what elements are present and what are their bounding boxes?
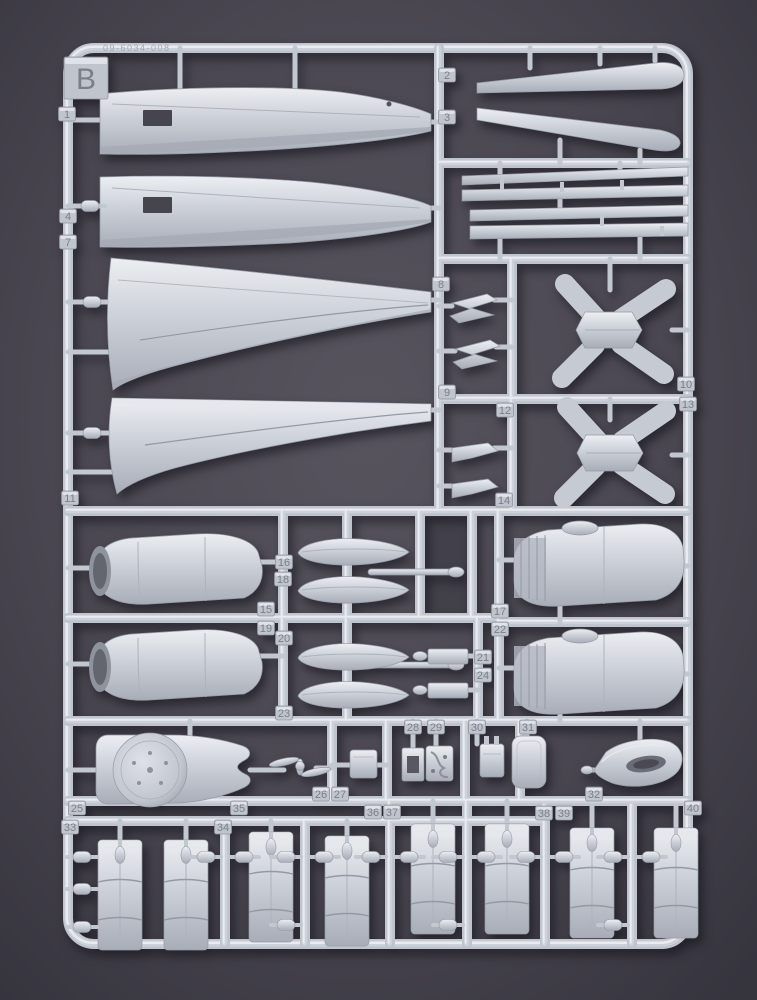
svg-text:27: 27 bbox=[334, 789, 346, 801]
part-tab-36: 36 bbox=[365, 805, 382, 819]
part-tab-16: 16 bbox=[276, 555, 293, 569]
part-tab-26: 26 bbox=[313, 787, 330, 801]
svg-text:8: 8 bbox=[438, 279, 444, 291]
part-tab-22: 22 bbox=[492, 622, 509, 636]
part-tab-34: 34 bbox=[215, 820, 232, 834]
svg-text:12: 12 bbox=[499, 405, 511, 417]
part-tab-32: 32 bbox=[586, 787, 603, 801]
part-tab-29: 29 bbox=[428, 720, 445, 734]
svg-text:10: 10 bbox=[680, 379, 692, 391]
part-tab-37: 37 bbox=[384, 805, 401, 819]
leading-edge-strip-part bbox=[470, 223, 688, 239]
svg-text:29: 29 bbox=[430, 722, 442, 734]
svg-text:B: B bbox=[76, 63, 96, 96]
box-part bbox=[350, 750, 377, 778]
part-tab-13: 13 bbox=[680, 397, 697, 411]
part-tab-20: 20 bbox=[276, 631, 293, 645]
part-tab-23: 23 bbox=[276, 706, 293, 720]
part-tab-4: 4 bbox=[60, 209, 77, 223]
svg-text:16: 16 bbox=[278, 557, 290, 569]
svg-text:25: 25 bbox=[71, 803, 83, 815]
part-tab-19: 19 bbox=[258, 621, 275, 635]
part-tab-10: 10 bbox=[678, 377, 695, 391]
sprue-photo: 09-6034-008 B123478910111213141516171819… bbox=[0, 0, 757, 1000]
svg-text:15: 15 bbox=[260, 604, 272, 616]
svg-text:24: 24 bbox=[477, 670, 489, 682]
svg-text:30: 30 bbox=[471, 722, 483, 734]
part-tab-25: 25 bbox=[69, 801, 86, 815]
svg-text:23: 23 bbox=[278, 708, 290, 720]
svg-text:13: 13 bbox=[682, 399, 694, 411]
svg-text:2: 2 bbox=[444, 70, 450, 82]
part-tab-3: 3 bbox=[439, 110, 456, 124]
canister-part bbox=[480, 744, 504, 777]
svg-text:21: 21 bbox=[477, 652, 489, 664]
svg-text:1: 1 bbox=[64, 109, 70, 121]
part-tab-7: 7 bbox=[60, 235, 77, 249]
svg-text:33: 33 bbox=[64, 822, 76, 834]
part-tab-2: 2 bbox=[439, 68, 456, 82]
svg-text:38: 38 bbox=[538, 808, 550, 820]
part-tab-31: 31 bbox=[520, 720, 537, 734]
svg-text:32: 32 bbox=[588, 789, 600, 801]
part-tab-B: B bbox=[64, 57, 108, 99]
svg-text:39: 39 bbox=[558, 808, 570, 820]
part-tab-8: 8 bbox=[433, 277, 450, 291]
part-tab-28: 28 bbox=[405, 720, 422, 734]
small-plate-part bbox=[428, 683, 468, 698]
svg-text:14: 14 bbox=[498, 495, 510, 507]
part-tab-9: 9 bbox=[439, 385, 456, 399]
shadowed-empty-cell bbox=[424, 517, 468, 613]
part-tab-18: 18 bbox=[275, 572, 292, 586]
svg-text:20: 20 bbox=[278, 633, 290, 645]
wing-slot-hole bbox=[143, 110, 172, 126]
embossed-mold-code: 09-6034-008 bbox=[103, 43, 171, 53]
svg-text:36: 36 bbox=[367, 807, 379, 819]
svg-text:28: 28 bbox=[407, 722, 419, 734]
part-tab-39: 39 bbox=[556, 806, 573, 820]
engine-nacelle-side-part bbox=[96, 630, 262, 701]
part-tab-14: 14 bbox=[496, 493, 513, 507]
part-tab-30: 30 bbox=[469, 720, 486, 734]
part-tab-21: 21 bbox=[475, 650, 492, 664]
svg-text:9: 9 bbox=[444, 387, 450, 399]
svg-text:37: 37 bbox=[386, 807, 398, 819]
svg-text:31: 31 bbox=[522, 722, 534, 734]
part-tab-1: 1 bbox=[59, 107, 76, 121]
part-tab-12: 12 bbox=[497, 403, 514, 417]
part-tab-27: 27 bbox=[332, 787, 349, 801]
svg-text:22: 22 bbox=[494, 624, 506, 636]
svg-text:35: 35 bbox=[233, 803, 245, 815]
svg-text:11: 11 bbox=[64, 493, 75, 505]
svg-text:4: 4 bbox=[65, 211, 71, 223]
part-tab-24: 24 bbox=[475, 668, 492, 682]
svg-text:26: 26 bbox=[315, 789, 327, 801]
svg-text:18: 18 bbox=[277, 574, 289, 586]
svg-text:3: 3 bbox=[444, 112, 450, 124]
part-tab-11: 11 bbox=[62, 491, 79, 505]
svg-text:19: 19 bbox=[260, 623, 272, 635]
part-tab-33: 33 bbox=[62, 820, 79, 834]
svg-text:40: 40 bbox=[687, 803, 699, 815]
svg-text:34: 34 bbox=[217, 822, 229, 834]
part-tab-17: 17 bbox=[492, 604, 509, 618]
part-tab-38: 38 bbox=[536, 806, 553, 820]
small-plate-part bbox=[428, 649, 468, 664]
engine-nacelle-side-part bbox=[96, 534, 262, 605]
part-tab-40: 40 bbox=[685, 801, 702, 815]
svg-text:7: 7 bbox=[65, 237, 71, 249]
wing-slot-hole bbox=[143, 197, 172, 213]
svg-text:17: 17 bbox=[494, 606, 506, 618]
part-tab-15: 15 bbox=[258, 602, 275, 616]
part-tab-35: 35 bbox=[231, 801, 248, 815]
